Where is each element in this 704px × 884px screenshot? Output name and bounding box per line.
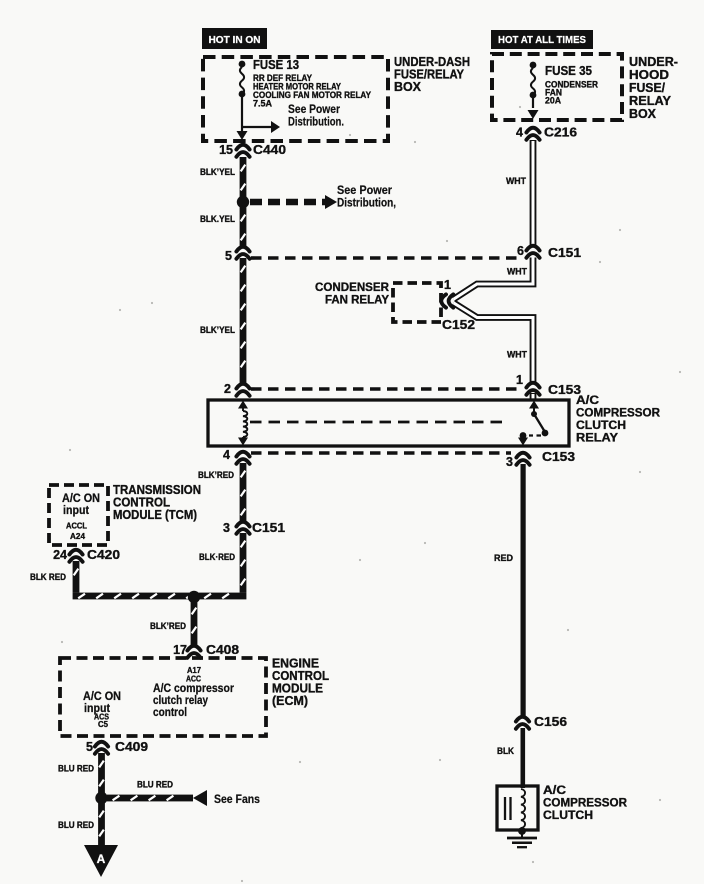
svg-text:UNDER-: UNDER- xyxy=(629,55,678,69)
svg-text:CLUTCH: CLUTCH xyxy=(543,808,593,822)
svg-text:FUSE/: FUSE/ xyxy=(629,81,666,95)
svg-text:1: 1 xyxy=(444,278,451,292)
svg-text:WHT: WHT xyxy=(506,176,526,186)
svg-text:HOOD: HOOD xyxy=(629,68,669,82)
svg-text:20A: 20A xyxy=(545,96,561,106)
svg-text:input: input xyxy=(63,505,89,517)
svg-text:C5: C5 xyxy=(98,720,109,729)
svg-text:A: A xyxy=(97,852,106,866)
svg-text:1: 1 xyxy=(516,373,523,387)
svg-text:A/C ON: A/C ON xyxy=(62,493,100,505)
svg-text:A24: A24 xyxy=(70,532,86,541)
svg-text:HOT IN ON: HOT IN ON xyxy=(209,34,261,46)
svg-text:C216: C216 xyxy=(544,125,577,140)
svg-text:BLK’YEL: BLK’YEL xyxy=(200,167,235,177)
svg-text:MODULE (TCM): MODULE (TCM) xyxy=(113,508,197,522)
svg-text:FUSE 35: FUSE 35 xyxy=(545,63,592,78)
svg-text:C409: C409 xyxy=(115,739,148,754)
svg-text:C151: C151 xyxy=(252,520,285,535)
svg-text:C440: C440 xyxy=(253,142,286,157)
svg-text:BOX: BOX xyxy=(629,107,657,121)
svg-text:5: 5 xyxy=(225,249,232,263)
svg-text:BLK’YEL: BLK’YEL xyxy=(200,325,235,335)
svg-text:BLU RED: BLU RED xyxy=(58,820,94,830)
svg-text:C153: C153 xyxy=(542,449,575,464)
svg-text:3: 3 xyxy=(223,521,230,535)
svg-text:Distribution.: Distribution. xyxy=(288,115,344,129)
svg-text:C151: C151 xyxy=(548,245,581,260)
svg-text:HOT AT ALL TIMES: HOT AT ALL TIMES xyxy=(498,34,586,46)
svg-text:FAN RELAY: FAN RELAY xyxy=(325,293,389,307)
svg-text:RELAY: RELAY xyxy=(576,431,618,445)
svg-text:A/C ON: A/C ON xyxy=(83,691,121,703)
svg-text:BLU RED: BLU RED xyxy=(58,764,94,774)
svg-text:2: 2 xyxy=(224,382,231,396)
svg-text:C152: C152 xyxy=(442,317,475,332)
svg-text:7.5A: 7.5A xyxy=(253,99,272,109)
svg-text:BLK·RED: BLK·RED xyxy=(199,552,235,562)
svg-text:BLK’RED: BLK’RED xyxy=(198,470,234,480)
svg-text:control: control xyxy=(153,707,187,719)
svg-text:FUSE 13: FUSE 13 xyxy=(253,57,299,72)
svg-text:RED: RED xyxy=(494,553,513,563)
svg-text:(ECM): (ECM) xyxy=(272,694,308,708)
svg-text:C408: C408 xyxy=(206,642,239,657)
svg-text:3: 3 xyxy=(506,455,513,469)
svg-text:RELAY: RELAY xyxy=(629,94,672,108)
svg-text:clutch relay: clutch relay xyxy=(153,695,209,707)
svg-text:ACCL: ACCL xyxy=(66,522,87,531)
svg-text:24: 24 xyxy=(53,548,67,562)
svg-text:17: 17 xyxy=(173,643,187,657)
svg-text:BLK’RED: BLK’RED xyxy=(150,621,186,631)
svg-text:BOX: BOX xyxy=(394,80,422,94)
svg-text:BLU RED: BLU RED xyxy=(137,780,173,790)
svg-text:See Fans: See Fans xyxy=(214,792,260,806)
svg-text:WHT: WHT xyxy=(507,350,527,360)
svg-text:4: 4 xyxy=(516,126,523,140)
svg-text:C156: C156 xyxy=(534,714,567,729)
svg-text:BLK.YEL: BLK.YEL xyxy=(200,214,235,224)
svg-text:15: 15 xyxy=(219,143,233,157)
svg-text:BLK: BLK xyxy=(497,746,514,756)
svg-text:4: 4 xyxy=(223,448,230,462)
svg-text:WHT: WHT xyxy=(507,267,527,277)
svg-text:6: 6 xyxy=(517,244,524,258)
svg-text:Distribution,: Distribution, xyxy=(337,196,396,210)
svg-text:5: 5 xyxy=(86,740,93,754)
svg-text:C420: C420 xyxy=(87,547,120,562)
svg-text:A/C compressor: A/C compressor xyxy=(153,683,234,695)
svg-text:BLK RED: BLK RED xyxy=(30,572,66,582)
